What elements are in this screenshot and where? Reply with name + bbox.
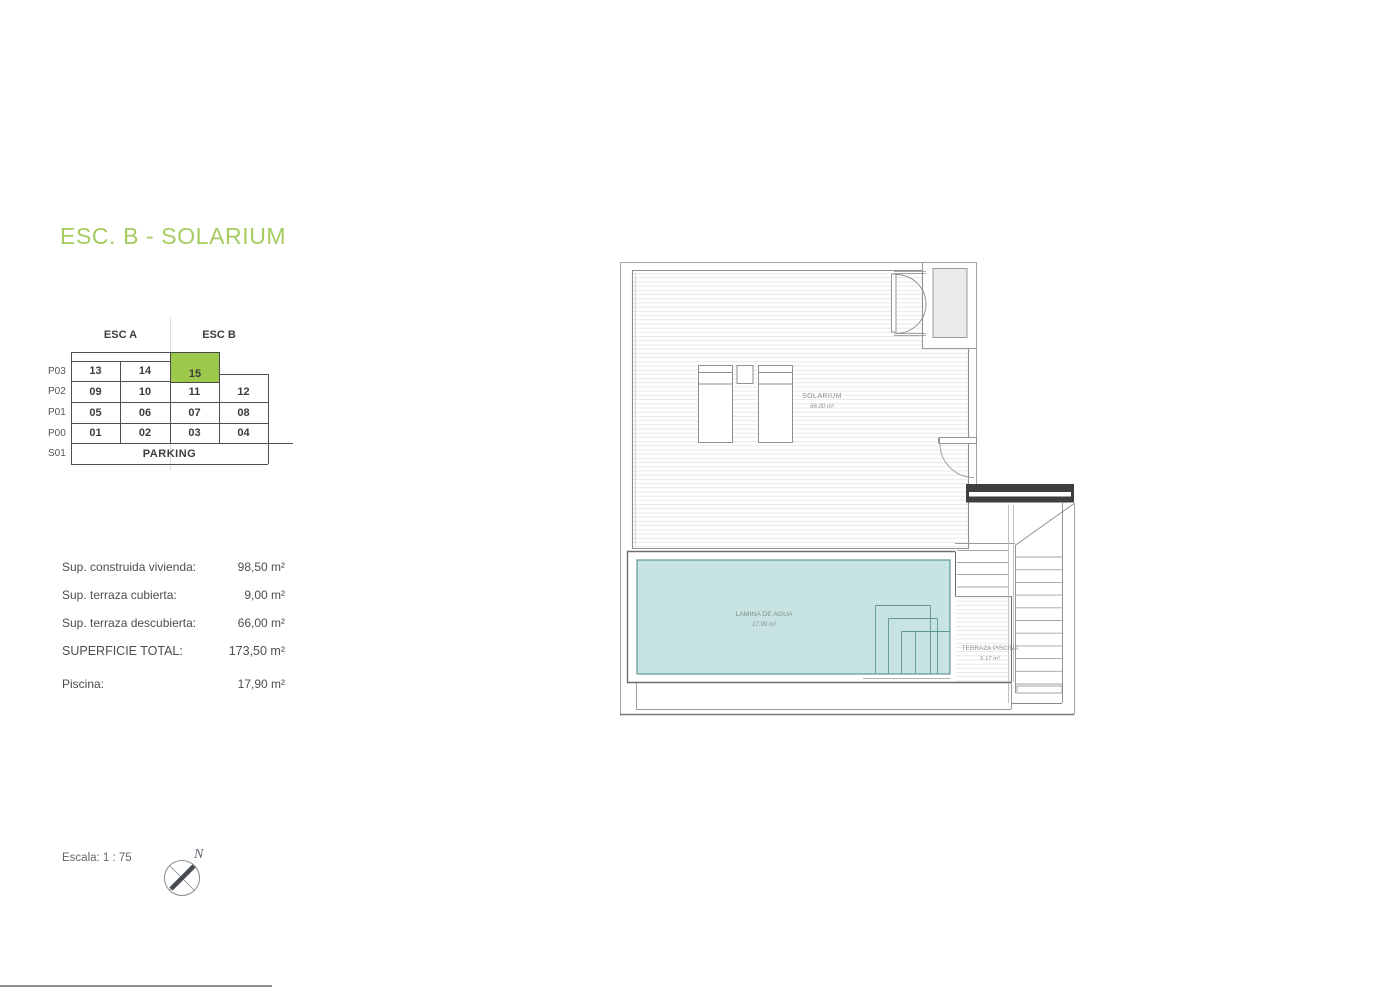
- unit-cell-08[interactable]: 08: [219, 402, 268, 423]
- surface-value: 66,00 m²: [238, 616, 285, 630]
- grid-line: [268, 374, 269, 464]
- solarium-area: 66.00 m²: [810, 404, 835, 410]
- pool: [637, 560, 950, 674]
- pool-label: Piscina:: [62, 677, 104, 691]
- floor-label-p03: P03: [48, 366, 68, 377]
- surface-value: 98,50 m²: [238, 560, 285, 574]
- unit-cell-11[interactable]: 11: [170, 381, 219, 402]
- scale-label: Escala: 1 : 75: [62, 852, 132, 864]
- unit-cell-09[interactable]: 09: [71, 381, 120, 402]
- stair-bulkhead: [933, 269, 967, 338]
- unit-cell-04[interactable]: 04: [219, 423, 268, 443]
- terrace-edges: [637, 682, 1012, 710]
- pool-terrace-strip: [956, 597, 1012, 683]
- column-header-esc-b: ESC B: [170, 329, 268, 341]
- floor-label-s01: S01: [48, 448, 68, 459]
- floor-label-p01: P01: [48, 407, 68, 418]
- unit-cell-07[interactable]: 07: [170, 402, 219, 423]
- pool-terrace-label: TERRAZA PISCINA: [962, 645, 1020, 652]
- page-title: ESC. B - SOLARIUM: [60, 223, 286, 250]
- unit-cell-05[interactable]: 05: [71, 402, 120, 423]
- unit-cell-03[interactable]: 03: [170, 423, 219, 443]
- unit-cell-14[interactable]: 14: [120, 361, 170, 381]
- sun-lounger: [699, 366, 733, 443]
- floor-plan-drawing: SOLARIUM 66.00 m² LAMINA DE AGUA 17.90 m…: [616, 253, 1088, 731]
- surface-label: Sup. terraza descubierta:: [62, 616, 196, 630]
- pool-terrace-area: 6.17 m²: [980, 656, 1001, 662]
- unit-cell-06[interactable]: 06: [120, 402, 170, 423]
- unit-selector-table: ESC A ESC B P03 P02 P01 P00 S01 13 14 15…: [48, 322, 308, 474]
- unit-cell-02[interactable]: 02: [120, 423, 170, 443]
- floor-label-p00: P00: [48, 428, 68, 439]
- solarium-deck: [633, 271, 969, 549]
- surface-total-value: 173,50 m²: [229, 644, 285, 658]
- page-edge-line: [0, 985, 272, 987]
- grid-line: [71, 464, 268, 465]
- solarium-label: SOLARIUM: [802, 393, 842, 400]
- surface-total-label: SUPERFICIE TOTAL:: [62, 644, 183, 658]
- compass-icon: N: [158, 842, 212, 900]
- pool-value: 17,90 m²: [238, 677, 285, 691]
- page: ESC. B - SOLARIUM ESC A ESC B P03 P02 P0…: [0, 0, 1400, 989]
- unit-cell-15-highlighted[interactable]: 15: [170, 352, 220, 383]
- water-sheet-label: LAMINA DE AGUA: [735, 611, 793, 618]
- unit-cell-01[interactable]: 01: [71, 423, 120, 443]
- surface-value: 9,00 m²: [244, 588, 285, 602]
- parking-cell[interactable]: PARKING: [71, 443, 268, 464]
- unit-cell-12[interactable]: 12: [219, 381, 268, 402]
- compass-north-label: N: [193, 847, 204, 862]
- surface-label: Sup. construida vivienda:: [62, 560, 196, 574]
- sun-lounger: [759, 366, 793, 443]
- unit-cell-10[interactable]: 10: [120, 381, 170, 402]
- column-header-esc-a: ESC A: [71, 329, 170, 341]
- floor-label-p02: P02: [48, 386, 68, 397]
- grid-line: [219, 374, 268, 375]
- section-wall: [966, 484, 1074, 503]
- unit-cell-13[interactable]: 13: [71, 361, 120, 381]
- water-sheet-area: 17.90 m²: [752, 622, 777, 628]
- side-table: [737, 366, 753, 384]
- surface-label: Sup. terraza cubierta:: [62, 588, 177, 602]
